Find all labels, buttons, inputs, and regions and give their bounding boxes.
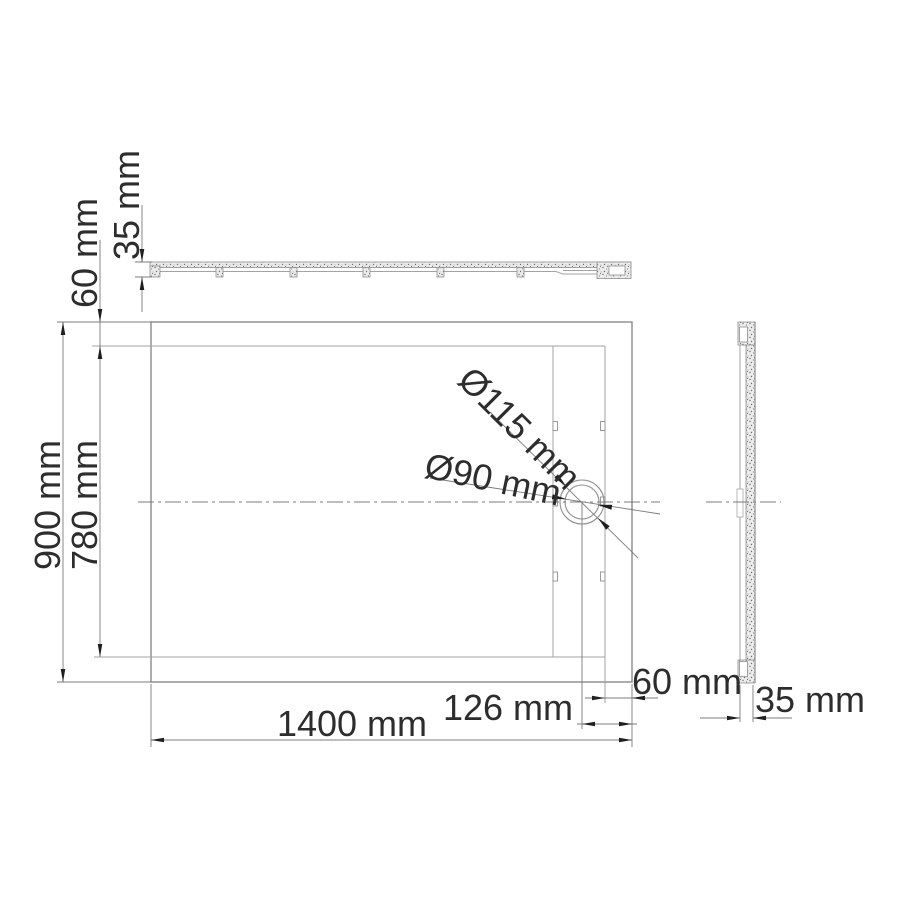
top-profile-rim-notch — [609, 266, 625, 275]
dim-label-top-border: 60 mm — [64, 198, 105, 308]
top-profile-rib — [437, 268, 444, 278]
dim-top-border: 60 mm — [64, 198, 105, 657]
top-profile-rib — [363, 268, 370, 278]
clip-tab — [601, 422, 606, 431]
side-rim-top-notch — [740, 327, 748, 342]
shower-tray-technical-drawing: 35 mm 60 mm 900 mm 780 mm Ø115 mm — [0, 0, 900, 900]
arrowhead — [98, 644, 103, 657]
top-profile-rib — [517, 268, 524, 278]
arrowhead — [727, 716, 740, 721]
top-profile-foot-left — [150, 266, 160, 277]
side-drain-groove — [737, 489, 743, 517]
dim-label-drain-offset: 126 mm — [443, 687, 573, 728]
arrowhead — [582, 722, 595, 727]
top-profile-rib — [216, 268, 223, 278]
drawing-svg: 35 mm 60 mm 900 mm 780 mm Ø115 mm — [0, 0, 900, 900]
dim-label-side-thickness: 35 mm — [755, 679, 865, 720]
arrowhead — [619, 738, 632, 743]
clip-tab — [553, 572, 558, 581]
arrowhead — [98, 346, 103, 359]
arrowhead — [151, 738, 164, 743]
top-profile-slab — [150, 262, 631, 268]
top-profile-underside — [160, 272, 597, 275]
side-profile-view — [706, 322, 781, 683]
clip-tab — [601, 572, 606, 581]
plan-view — [92, 322, 660, 703]
dim-overall-depth: 900 mm — [27, 322, 68, 682]
side-wall-band — [746, 345, 755, 660]
top-profile-view — [150, 262, 631, 279]
arrowhead — [98, 309, 103, 322]
dim-label-overall-depth: 900 mm — [27, 440, 68, 570]
dim-label-inner-depth: 780 mm — [64, 440, 105, 570]
arrowhead — [61, 322, 66, 335]
clip-tab — [553, 422, 558, 431]
dim-label-right-border: 60 mm — [632, 661, 742, 702]
arrowhead — [140, 277, 145, 290]
dim-label-overall-width: 1400 mm — [277, 703, 427, 744]
arrowhead — [619, 722, 632, 727]
dim-inner-depth: 780 mm — [64, 440, 105, 657]
dim-drain-offset: 126 mm — [443, 687, 637, 728]
dim-label-top-height: 35 mm — [106, 150, 147, 260]
top-profile-rib — [290, 268, 297, 278]
arrowhead — [592, 696, 605, 701]
dim-top-height: 35 mm — [106, 150, 147, 312]
arrowhead — [61, 669, 66, 682]
